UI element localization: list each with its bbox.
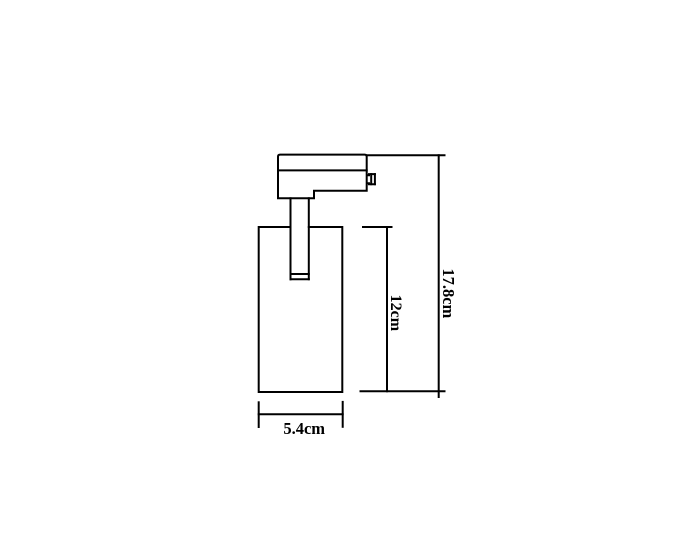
svg-text:12cm: 12cm [387,295,404,332]
svg-text:5.4cm: 5.4cm [283,419,325,438]
svg-text:17.8cm: 17.8cm [439,268,458,318]
